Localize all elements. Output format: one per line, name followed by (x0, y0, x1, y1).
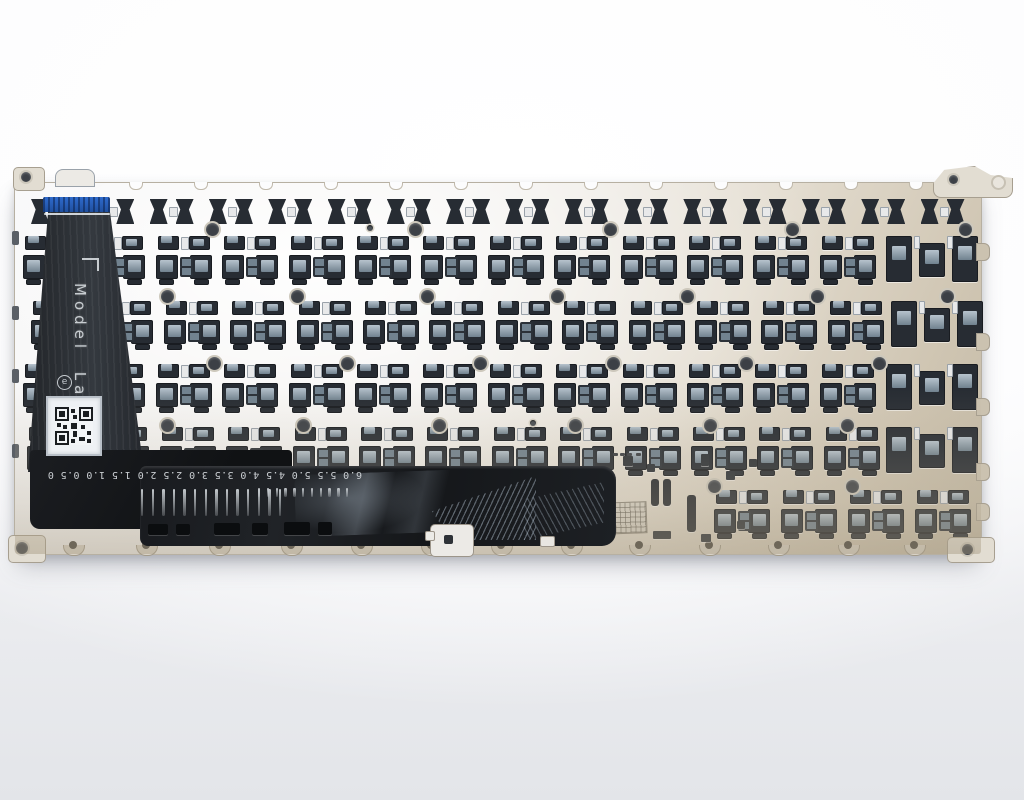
mechanism-part (914, 427, 920, 440)
ruler-tick (337, 488, 339, 497)
edge-notch (389, 182, 403, 190)
hinge-dimple (351, 545, 373, 556)
stabilizer-slot (663, 479, 671, 506)
mechanism-part (380, 237, 388, 250)
mechanism-part (512, 266, 525, 277)
ruler-tick (236, 489, 238, 516)
mechanism-part (914, 236, 920, 249)
estimated-sign-icon: e (57, 375, 72, 390)
key-mechanism-cluster (446, 199, 490, 225)
mechanism-part (958, 437, 972, 451)
mechanism-part (800, 325, 813, 337)
mechanism-part (632, 344, 647, 350)
mechanism-part (845, 365, 853, 378)
mechanism-part (294, 199, 312, 224)
key-mechanism-cluster (695, 301, 751, 349)
mechanism-part (505, 199, 523, 224)
hinge-dimple (629, 545, 651, 556)
mechanism-part (757, 388, 770, 400)
mechanism-part (294, 236, 305, 243)
mechanism-part (188, 331, 201, 342)
mechanism-part (330, 430, 341, 437)
mechanism-part (398, 451, 411, 463)
mechanism-part (406, 207, 415, 217)
edge-notch (12, 369, 19, 383)
mechanism-part (424, 279, 439, 285)
mechanism-part (739, 491, 747, 504)
mechanism-part (785, 331, 798, 342)
key-mechanism-cluster (621, 364, 677, 412)
screw-hole (941, 290, 954, 303)
flex-edge-slot (252, 523, 268, 535)
mechanism-part (445, 266, 458, 277)
mechanism-part (914, 364, 920, 377)
mechanism-part (497, 427, 508, 434)
mechanism-part (791, 407, 806, 413)
mechanism-part (848, 457, 861, 468)
key-mechanism-cluster (355, 236, 411, 284)
mechanism-part (858, 407, 873, 413)
mechanism-part (659, 407, 674, 413)
mechanism-part (446, 199, 464, 224)
key-mechanism-cluster (886, 364, 980, 412)
mechanism-part (226, 388, 239, 400)
mechanism-part (758, 236, 769, 243)
mechanism-part (782, 428, 790, 441)
mechanism-part (827, 470, 842, 476)
mechanism-part (786, 490, 797, 497)
mechanism-part (460, 260, 473, 272)
mechanism-part (521, 302, 529, 315)
key-mechanism-cluster (289, 364, 345, 412)
mechanism-part (432, 344, 447, 350)
mechanism-part (650, 199, 668, 224)
mechanism-part (227, 236, 238, 243)
key-mechanism-cluster (562, 301, 618, 349)
mechanism-part (472, 199, 490, 224)
screw-hole (433, 419, 446, 432)
mechanism-part (940, 491, 948, 504)
mechanism-part (189, 302, 197, 315)
mechanism-part (520, 331, 533, 342)
mechanism-part (180, 394, 193, 405)
mechanism-part (925, 441, 939, 455)
mechanism-part (453, 331, 466, 342)
mechanism-part (384, 428, 392, 441)
mechanism-part (150, 199, 168, 224)
mechanism-part (160, 388, 173, 400)
mechanism-part (268, 199, 286, 224)
mechanism-part (396, 430, 407, 437)
mechanism-part (492, 260, 505, 272)
mechanism-part (394, 260, 407, 272)
edge-notch (324, 182, 338, 190)
key-mechanism-cluster (886, 236, 980, 284)
mechanism-part (247, 237, 255, 250)
mechanism-part (559, 236, 570, 243)
mechanism-part (591, 199, 609, 224)
mechanism-part (918, 533, 933, 539)
screw-hole (409, 223, 422, 236)
screw-hole (16, 542, 28, 554)
mechanism-part (122, 302, 130, 315)
mechanism-part (394, 388, 407, 400)
mechanism-part (781, 457, 794, 468)
mechanism-part (724, 367, 735, 374)
ruler-tick (320, 488, 322, 497)
mechanism-part (732, 304, 743, 311)
mechanism-part (587, 302, 595, 315)
mechanism-part (261, 388, 274, 400)
mechanism-part (762, 207, 771, 217)
key-mechanism-cluster (753, 364, 809, 412)
mechanism-part (667, 344, 682, 350)
mechanism-part (513, 237, 521, 250)
screw-hole (421, 290, 434, 303)
mechanism-part (327, 279, 342, 285)
edge-tab (976, 463, 990, 481)
mechanism-part (853, 302, 861, 315)
mechanism-part (314, 237, 322, 250)
mechanism-part (393, 407, 408, 413)
mechanism-part (940, 207, 949, 217)
key-mechanism-cluster (429, 301, 485, 349)
mechanism-part (659, 279, 674, 285)
mechanism-part (625, 260, 638, 272)
screw-hole (949, 175, 958, 184)
mechanism-part (458, 239, 469, 246)
mechanism-part (267, 304, 278, 311)
mechanism-part (297, 451, 310, 463)
mechanism-part (180, 266, 193, 277)
mechanism-part (796, 451, 809, 463)
mechanism-part (531, 451, 544, 463)
mechanism-part (114, 237, 122, 250)
mechanism-part (393, 279, 408, 285)
key-mechanism-cluster (554, 364, 610, 412)
ruler-tick (152, 489, 154, 516)
key-mechanism-cluster (743, 199, 787, 225)
key-mechanism-cluster (222, 236, 278, 284)
mechanism-part (777, 394, 790, 405)
edge-notch (194, 182, 208, 190)
screw-hole (786, 223, 799, 236)
ruler-tick (226, 489, 228, 516)
mechanism-part (454, 302, 462, 315)
edge-tab (976, 333, 990, 351)
mechanism-part (579, 237, 587, 250)
key-mechanism-cluster (891, 301, 985, 349)
mechanism-part (493, 236, 504, 243)
mechanism-part (326, 239, 337, 246)
mechanism-part (27, 260, 40, 272)
mechanism-part (778, 237, 786, 250)
edge-notch (649, 182, 663, 190)
mechanism-part (201, 304, 212, 311)
mechanism-part (728, 430, 739, 437)
mechanism-part (823, 279, 838, 285)
mechanism-part (958, 374, 972, 388)
mechanism-part (765, 325, 778, 337)
mechanism-part (845, 237, 853, 250)
mechanism-part (730, 451, 743, 463)
mechanism-part (802, 199, 820, 224)
mechanism-part (293, 388, 306, 400)
key-mechanism-cluster (824, 427, 880, 475)
flex-edge-slot (176, 524, 190, 535)
mechanism-part (579, 365, 587, 378)
edge-notch (519, 182, 533, 190)
key-mechanism-cluster (554, 236, 610, 284)
mechanism-part (197, 430, 208, 437)
mount-cutout (647, 464, 655, 472)
mechanism-part (387, 331, 400, 342)
mechanism-part (233, 344, 248, 350)
mechanism-part (328, 199, 346, 224)
screw-hole (846, 480, 859, 493)
mechanism-part (128, 260, 141, 272)
mechanism-part (335, 344, 350, 350)
mechanism-part (193, 239, 204, 246)
mechanism-part (425, 388, 438, 400)
mechanism-part (761, 451, 774, 463)
mechanism-part (885, 493, 896, 500)
mechanism-part (952, 493, 963, 500)
edge-notch (779, 182, 793, 190)
mechanism-part (559, 364, 570, 371)
mechanism-part (294, 364, 305, 371)
mechanism-part (460, 388, 473, 400)
mechanism-part (833, 301, 844, 308)
mechanism-part (209, 199, 227, 224)
mechanism-part (491, 279, 506, 285)
ruler-tick (279, 489, 281, 516)
key-mechanism-cluster (753, 236, 809, 284)
screw-hole (604, 223, 617, 236)
edge-notch (12, 306, 19, 320)
mechanism-part (359, 260, 372, 272)
screw-hole (161, 419, 174, 432)
mechanism-part (496, 451, 509, 463)
mechanism-part (719, 490, 730, 497)
mount-cutout (726, 471, 735, 480)
mechanism-part (824, 260, 837, 272)
key-mechanism-cluster (565, 199, 609, 225)
mechanism-part (181, 237, 189, 250)
mechanism-part (658, 239, 669, 246)
mechanism-part (694, 470, 709, 476)
mechanism-part (792, 260, 805, 272)
mechanism-part (586, 331, 599, 342)
mechanism-part (578, 394, 591, 405)
key-mechanism-cluster (355, 364, 411, 412)
mechanism-part (367, 325, 380, 337)
mechanism-part (947, 199, 965, 224)
mechanism-part (531, 199, 549, 224)
mechanism-part (225, 407, 240, 413)
key-mechanism-cluster (421, 236, 477, 284)
mechanism-part (194, 407, 209, 413)
mechanism-part (360, 364, 371, 371)
mechanism-part (662, 430, 673, 437)
mechanism-part (195, 260, 208, 272)
key-mechanism-cluster (156, 236, 212, 284)
mechanism-part (751, 493, 762, 500)
mechanism-part (666, 304, 677, 311)
screw-hole (962, 544, 973, 555)
mechanism-part (930, 315, 944, 329)
edge-notch (12, 444, 19, 458)
mechanism-part (591, 367, 602, 374)
mechanism-part (947, 364, 953, 377)
mechanism-part (135, 344, 150, 350)
hinge-dimple (491, 545, 513, 556)
mechanism-part (534, 344, 549, 350)
mechanism-part (259, 239, 270, 246)
mechanism-part (691, 388, 704, 400)
key-mechanism-cluster (828, 301, 884, 349)
ruler-tick (328, 488, 330, 497)
etched-mark (620, 453, 625, 456)
mechanism-part (752, 533, 767, 539)
key-mechanism-cluster (624, 199, 668, 225)
mechanism-part (663, 470, 678, 476)
mount-cutout (653, 531, 671, 539)
mechanism-part (725, 279, 740, 285)
ruler-tick (173, 489, 175, 516)
mechanism-part (600, 344, 615, 350)
mechanism-part (358, 279, 373, 285)
ruler-tick (205, 489, 207, 516)
edge-notch (844, 182, 858, 190)
corner-registration-mark (82, 258, 99, 271)
key-mechanism-cluster (164, 301, 220, 349)
mechanism-part (624, 279, 639, 285)
mechanism-part (526, 407, 541, 413)
mechanism-part (168, 325, 181, 337)
mechanism-part (919, 514, 932, 526)
mechanism-part (413, 199, 431, 224)
mechanism-part (301, 325, 314, 337)
screw-hole (208, 357, 221, 370)
mechanism-part (624, 199, 642, 224)
mechanism-part (328, 260, 341, 272)
etched-mark (627, 453, 632, 456)
mechanism-part (599, 304, 610, 311)
mechanism-part (512, 394, 525, 405)
mechanism-part (116, 199, 134, 224)
mechanism-part (758, 364, 769, 371)
mechanism-part (493, 364, 504, 371)
hinge-dimple (63, 545, 85, 556)
mechanism-part (558, 388, 571, 400)
mechanism-part (533, 304, 544, 311)
key-mechanism-cluster (496, 301, 552, 349)
mechanism-part (379, 266, 392, 277)
mechanism-part (302, 301, 313, 308)
mechanism-part (734, 325, 747, 337)
key-mechanism-cluster (222, 364, 278, 412)
mechanism-part (887, 199, 905, 224)
mechanism-part (336, 325, 349, 337)
mechanism-part (591, 239, 602, 246)
ruler-tick (183, 489, 185, 516)
mechanism-part (26, 279, 41, 285)
mechanism-part (715, 457, 728, 468)
mechanism-part (716, 428, 724, 441)
mechanism-part (501, 301, 512, 308)
mechanism-part (920, 490, 931, 497)
mechanism-part (567, 301, 578, 308)
mechanism-part (513, 365, 521, 378)
key-mechanism-cluster (691, 427, 747, 475)
edge-notch (584, 182, 598, 190)
hinge-dimple (768, 545, 790, 556)
mechanism-part (322, 302, 330, 315)
mechanism-part (468, 325, 481, 337)
mechanism-part (161, 236, 172, 243)
mechanism-part (583, 428, 591, 441)
screw-hole (206, 223, 219, 236)
mechanism-part (829, 427, 840, 434)
mechanism-part (844, 394, 857, 405)
key-mechanism-cluster (781, 490, 837, 538)
mechanism-part (368, 301, 379, 308)
ribbon-connector-tip (43, 197, 110, 212)
hinge-dimple (209, 545, 231, 556)
mount-cutout (749, 459, 757, 467)
mechanism-part (760, 470, 775, 476)
mechanism-part (347, 207, 356, 217)
mechanism-part (466, 304, 477, 311)
latch-bracket (55, 169, 95, 187)
key-mechanism-cluster (921, 199, 965, 225)
mechanism-part (825, 364, 836, 371)
mechanism-part (919, 301, 925, 314)
key-mechanism-cluster (363, 301, 419, 349)
mechanism-part (458, 367, 469, 374)
mechanism-part (633, 325, 646, 337)
mechanism-part (844, 266, 857, 277)
mechanism-part (246, 266, 259, 277)
mechanism-part (195, 388, 208, 400)
mechanism-part (446, 365, 454, 378)
mechanism-part (462, 430, 473, 437)
mechanism-part (824, 388, 837, 400)
mechanism-part (293, 260, 306, 272)
key-mechanism-cluster (505, 199, 549, 225)
mechanism-part (784, 533, 799, 539)
flex-edge-slot (284, 522, 310, 535)
hinge-dimple (904, 545, 926, 556)
mechanism-part (268, 344, 283, 350)
mechanism-part (527, 388, 540, 400)
mechanism-part (925, 250, 939, 264)
mechanism-part (712, 365, 720, 378)
screw-hole (21, 172, 31, 182)
key-mechanism-cluster (421, 364, 477, 412)
mechanism-part (225, 279, 240, 285)
mechanism-part (646, 237, 654, 250)
mechanism-part (167, 344, 182, 350)
mechanism-part (557, 407, 572, 413)
screw-hole (708, 480, 721, 493)
mechanism-part (702, 207, 711, 217)
mechanism-part (786, 302, 794, 315)
mechanism-part (313, 266, 326, 277)
mechanism-part (795, 470, 810, 476)
mechanism-part (692, 364, 703, 371)
